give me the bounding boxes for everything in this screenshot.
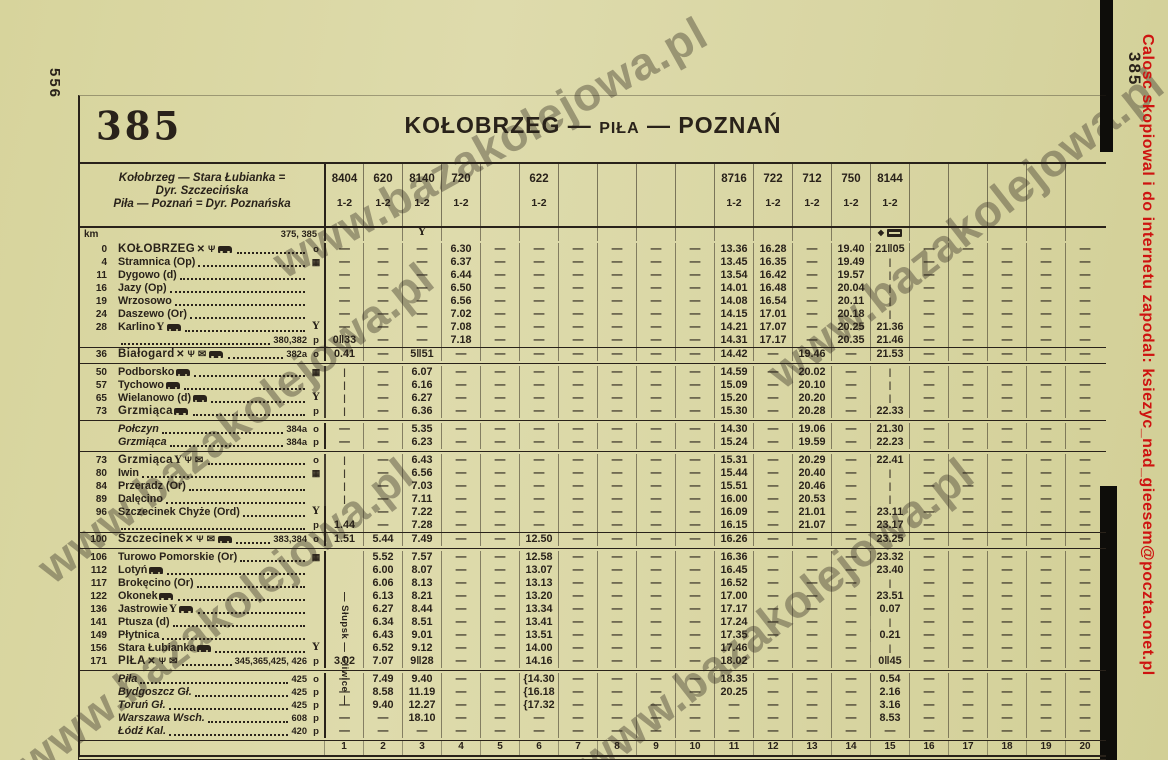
time-cell: — [1065, 379, 1104, 392]
time-cell: — [948, 436, 987, 449]
station-name: Przeradz (Or) [118, 480, 186, 493]
bus-icon [197, 645, 211, 652]
train-number: 720 [442, 173, 480, 197]
time-cell: — [441, 725, 480, 738]
km-value: 36 [80, 348, 110, 361]
time-cell: — [363, 282, 402, 295]
time-cell: — [480, 269, 519, 282]
train-class: 1-2 [832, 197, 870, 209]
time-cell: — [987, 348, 1026, 361]
time-cell: 13.36 [714, 243, 753, 256]
time-cell: — [558, 256, 597, 269]
time-cell: — [987, 590, 1026, 603]
time-cell: — [363, 423, 402, 436]
time-cell: — [675, 454, 714, 467]
train-class: 1-2 [520, 197, 558, 209]
time-cell: — [1065, 533, 1104, 546]
icon-cell [714, 228, 753, 241]
time-cell: — [948, 712, 987, 725]
time-cells: 0‖33——7.18——————14.3117.17—20.3521.46———… [324, 334, 1104, 347]
time-cell: 7.11 [402, 493, 441, 506]
time-cell: — [831, 551, 870, 564]
train-number: 620 [364, 173, 402, 197]
time-cell: — [753, 467, 792, 480]
bar-icon [174, 456, 181, 466]
time-cell: — [597, 436, 636, 449]
station-name: Połczyn [118, 423, 159, 436]
time-cell: — [792, 243, 831, 256]
time-cell: — [1026, 334, 1065, 347]
time-cell: — [948, 243, 987, 256]
time-cell: — [1065, 436, 1104, 449]
time-cell: — [909, 308, 948, 321]
time-cell: — [948, 686, 987, 699]
stop-marker: o [308, 533, 324, 546]
time-cell [324, 506, 363, 519]
time-cell: — [1026, 725, 1065, 738]
dotted-leader [194, 369, 305, 377]
dotted-leader [198, 606, 305, 614]
time-cell: 21.01 [792, 506, 831, 519]
time-cell: 7.49 [363, 673, 402, 686]
station-label: Połczyn384a [110, 423, 308, 436]
time-cell: — [675, 308, 714, 321]
time-cell: — [792, 295, 831, 308]
station-row: Grzmiąca384ap——6.23———————15.24—19.59—22… [80, 436, 1106, 449]
station-name: Piła [118, 673, 137, 686]
time-cell: {14.30 [519, 673, 558, 686]
time-cell: — [987, 673, 1026, 686]
icon-cell [519, 228, 558, 241]
time-cell: — [1026, 506, 1065, 519]
time-cell: — [480, 467, 519, 480]
time-cell: — [480, 603, 519, 616]
time-cell: 0‖33 [324, 334, 363, 347]
time-cell: | [324, 392, 363, 405]
time-cell: — [792, 321, 831, 334]
icon-cell [870, 228, 909, 241]
dotted-leader [195, 689, 289, 697]
train-column-header: 7221-2 [753, 164, 792, 226]
flag-icon [312, 367, 321, 378]
time-cell: 17.24 [714, 616, 753, 629]
dotted-leader [162, 632, 305, 640]
time-cell: 13.13 [519, 577, 558, 590]
station-name: Szczecinek [118, 533, 183, 546]
train-column-header [675, 164, 714, 226]
time-cell: — [636, 533, 675, 546]
route-ref: 420 [291, 725, 307, 738]
buffet-icon [196, 534, 203, 545]
km-value: 80 [80, 467, 110, 480]
station-row: 36Białogard382ao0.41—5‖51———————14.42—19… [80, 347, 1106, 361]
route-title: KOŁOBRZEG — PIŁA — POZNAŃ [80, 112, 1106, 139]
train-column-header [480, 164, 519, 226]
time-cell: 21.07 [792, 519, 831, 532]
time-cell: — [558, 506, 597, 519]
station-name: Łódź Kal. [118, 725, 166, 738]
time-cell: — [987, 506, 1026, 519]
bus-icon [209, 351, 223, 358]
time-cell: — [402, 269, 441, 282]
time-cell: — [987, 642, 1026, 655]
station-label: Stara Łubianka [110, 642, 308, 655]
flag-icon [312, 257, 321, 268]
time-cell: | [870, 295, 909, 308]
time-cell: — [1065, 577, 1104, 590]
train-number: 712 [793, 173, 831, 197]
time-cells: 6.008.07——13.07————16.45———23.40————— [324, 564, 1104, 577]
column-number: 8 [597, 741, 636, 755]
time-cell: — [1065, 642, 1104, 655]
time-cell: — [519, 423, 558, 436]
time-cell: 14.00 [519, 642, 558, 655]
train-column-header: 6201-2 [363, 164, 402, 226]
time-cells: |—6.56———————15.44—20.40—|————— [324, 467, 1104, 480]
couchette-icon [887, 229, 902, 237]
station-row: Łódź Kal.420p———————————————————— [80, 725, 1106, 738]
time-cell: — [558, 467, 597, 480]
time-cell: — [636, 686, 675, 699]
time-cell: — [402, 243, 441, 256]
time-cell [324, 551, 363, 564]
time-cell: — [714, 699, 753, 712]
post-icon [195, 456, 203, 466]
time-cell: — [831, 454, 870, 467]
time-cell: — [753, 699, 792, 712]
time-cell: — [519, 348, 558, 361]
time-cell: 9‖28 [402, 655, 441, 668]
dotted-leader [237, 246, 305, 254]
station-label: Iwin [110, 467, 308, 480]
time-cell: — [675, 506, 714, 519]
time-cell: — [909, 686, 948, 699]
time-cell: — [987, 712, 1026, 725]
diamond-icon [878, 228, 884, 238]
timetable-section: 0KOŁOBRZEGo———6.30——————13.3616.28—19.40… [80, 241, 1106, 363]
time-cell: — [753, 712, 792, 725]
time-cell: — [558, 533, 597, 546]
time-cell: — [1065, 256, 1104, 269]
time-cell: — [1065, 334, 1104, 347]
station-row: 89Dalęcino|—7.11———————16.00—20.53—|————… [80, 493, 1106, 506]
time-cell: — [909, 436, 948, 449]
time-cell: — [831, 366, 870, 379]
time-cell: — [987, 436, 1026, 449]
time-cell: 15.30 [714, 405, 753, 418]
timetable-section: Połczyn384ao——5.35———————14.30—19.06—21.… [80, 420, 1106, 451]
time-cell: — [558, 551, 597, 564]
time-cell: — [675, 243, 714, 256]
time-cell: — [909, 243, 948, 256]
station-label: Wielanowo (d) [110, 392, 308, 405]
column-number: 2 [363, 741, 402, 755]
time-cell: — [441, 480, 480, 493]
route-ref: 608 [291, 712, 307, 725]
time-cell: 9.40 [363, 699, 402, 712]
station-row: 4Stramnica (Op)———6.37——————13.4516.35—1… [80, 256, 1106, 269]
time-cell: — [909, 366, 948, 379]
time-cell: — [987, 655, 1026, 668]
time-cell: — [324, 321, 363, 334]
time-cell: — [948, 629, 987, 642]
time-cell: — [675, 493, 714, 506]
restaurant-icon [185, 535, 193, 545]
time-cell: 20.46 [792, 480, 831, 493]
train-column-header: 7501-2 [831, 164, 870, 226]
time-cell: — [363, 480, 402, 493]
time-cell: 20.04 [831, 282, 870, 295]
time-cell: — [831, 436, 870, 449]
time-cell: 6.56 [402, 467, 441, 480]
time-cell: — [675, 686, 714, 699]
time-cell: — [363, 256, 402, 269]
time-cell: — [636, 725, 675, 738]
time-cell: 16.15 [714, 519, 753, 532]
time-cell: 16.54 [753, 295, 792, 308]
station-label: 380,382 [110, 334, 308, 347]
time-cell: — [480, 379, 519, 392]
time-cell: — [558, 686, 597, 699]
time-cell: 18.35 [714, 673, 753, 686]
column-number: 17 [948, 741, 987, 755]
km-value: 4 [80, 256, 110, 269]
time-cell: 16.28 [753, 243, 792, 256]
time-cell: — [480, 493, 519, 506]
km-value: 106 [80, 551, 110, 564]
time-cell: — [441, 454, 480, 467]
time-cell: — [402, 282, 441, 295]
time-cell: — [753, 655, 792, 668]
time-cell: 6.13 [363, 590, 402, 603]
time-cell: — [636, 366, 675, 379]
station-row: 149Płytnica6.439.01——13.51————17.35———0.… [80, 629, 1106, 642]
time-cell: — [1026, 551, 1065, 564]
time-cell: — [1026, 616, 1065, 629]
dotted-leader [121, 522, 305, 530]
time-cell: — [1065, 655, 1104, 668]
time-cell: 6.27 [363, 603, 402, 616]
time-cell: — [480, 725, 519, 738]
time-cell: — [441, 379, 480, 392]
station-label: Turowo Pomorskie (Or) [110, 551, 308, 564]
time-cell: — [597, 725, 636, 738]
time-cell: — [1026, 493, 1065, 506]
stop-marker [308, 321, 324, 334]
time-cell: — [519, 295, 558, 308]
time-cell: — [558, 673, 597, 686]
km-value: 100 [80, 533, 110, 546]
time-cell: — [558, 348, 597, 361]
dotted-leader [173, 619, 305, 627]
time-cell: — [363, 308, 402, 321]
time-cell: 13.07 [519, 564, 558, 577]
time-cell: — [519, 392, 558, 405]
table-header: Kołobrzeg — Stara Łubianka = Dyr. Szczec… [80, 164, 1106, 228]
time-cell: — [792, 256, 831, 269]
time-cell: — [675, 629, 714, 642]
time-cell: — [909, 616, 948, 629]
train-column-header [1026, 164, 1065, 226]
icon-cell [753, 228, 792, 241]
train-column-header: 81441-2 [870, 164, 909, 226]
flag-icon [312, 468, 321, 479]
train-column-header: 87161-2 [714, 164, 753, 226]
time-cell: — [831, 616, 870, 629]
time-cell: 3.16 [870, 699, 909, 712]
time-cell: — [753, 436, 792, 449]
dotted-leader [169, 728, 288, 736]
train-number: 722 [754, 173, 792, 197]
station-row: 171PIŁA345,365,425, 426p3.027.079‖28——14… [80, 655, 1106, 668]
time-cell: — [480, 423, 519, 436]
time-cell: — [714, 712, 753, 725]
time-cell: — [675, 295, 714, 308]
time-cell: — [909, 603, 948, 616]
time-cell: 6.06 [363, 577, 402, 590]
time-cell: 23.17 [870, 519, 909, 532]
time-cell: — [948, 616, 987, 629]
station-row: 80Iwin|—6.56———————15.44—20.40—|————— [80, 467, 1106, 480]
time-cell: — [597, 686, 636, 699]
route-ref: 380,382 [273, 334, 307, 347]
station-label: Wrzosowo [110, 295, 308, 308]
time-cell: — [480, 564, 519, 577]
stop-marker: o [308, 673, 324, 686]
time-cell: — [909, 519, 948, 532]
dotted-leader [190, 311, 305, 319]
time-cells: —8.5811.19——{16.18————20.25———2.16————— [324, 686, 1104, 699]
time-cell: — [831, 564, 870, 577]
time-cells: 6.439.01——13.51————17.35———0.21————— [324, 629, 1104, 642]
time-cell: — [792, 590, 831, 603]
time-cell: — [480, 256, 519, 269]
time-cells: ———6.30——————13.3616.28—19.4021‖05————— [324, 243, 1104, 256]
time-cell: — [948, 321, 987, 334]
time-cell: — [792, 564, 831, 577]
time-cell: — [1026, 282, 1065, 295]
time-cell: — [519, 269, 558, 282]
bar-icon [169, 605, 176, 615]
time-cell: {16.18 [519, 686, 558, 699]
time-cell: 23.25 [870, 533, 909, 546]
station-label: Dalęcino [110, 493, 308, 506]
time-cell: — [909, 423, 948, 436]
stop-marker [308, 256, 324, 269]
time-cell: — [948, 506, 987, 519]
time-cells: 6.348.51——13.41————17.24———|————— [324, 616, 1104, 629]
time-cell: — [831, 655, 870, 668]
time-cell: — [831, 379, 870, 392]
time-cell: — [636, 423, 675, 436]
time-cell: — [558, 699, 597, 712]
route-title-dash: — [640, 112, 679, 138]
time-cell: — [987, 533, 1026, 546]
time-cells: |—6.36———————15.30—20.28—22.33————— [324, 405, 1104, 418]
km-value: 0 [80, 243, 110, 256]
time-cell: — [831, 642, 870, 655]
station-name: Toruń Gł. [118, 699, 166, 712]
time-cell: — [597, 243, 636, 256]
time-cell: — [1026, 655, 1065, 668]
time-cell: — [636, 712, 675, 725]
time-cell: — [402, 334, 441, 347]
train-class: 1-2 [793, 197, 831, 209]
time-cells: —9.4012.27——{17.32————————3.16————— [324, 699, 1104, 712]
time-cell: — [675, 366, 714, 379]
time-cell: — [831, 577, 870, 590]
time-cell: 12.50 [519, 533, 558, 546]
time-cell: | [870, 577, 909, 590]
km-value: 136 [80, 603, 110, 616]
time-cell: — [831, 590, 870, 603]
dotted-leader [121, 337, 270, 345]
time-cell: — [753, 686, 792, 699]
time-cell: — [558, 243, 597, 256]
time-cell: — [1026, 295, 1065, 308]
train-column-header [909, 164, 948, 226]
time-cell: — [675, 564, 714, 577]
time-cell: — [675, 392, 714, 405]
time-cell: — [558, 392, 597, 405]
route-title-left: KOŁOBRZEG [404, 112, 560, 138]
station-name: Ptusza (d) [118, 616, 170, 629]
time-cell: — [1065, 392, 1104, 405]
direction-info: Kołobrzeg — Stara Łubianka = Dyr. Szczec… [80, 164, 324, 226]
time-cell: — [675, 379, 714, 392]
time-cell: — [792, 686, 831, 699]
credit-line: Calosc skopiowal i do internetu zapodal:… [1138, 34, 1156, 676]
station-name: Dalęcino [118, 493, 163, 506]
dotted-leader [180, 272, 305, 280]
time-cell: — [987, 334, 1026, 347]
time-cell: — [558, 423, 597, 436]
time-cell: — [948, 348, 987, 361]
time-cell: 19.06 [792, 423, 831, 436]
bus-icon [218, 246, 232, 253]
bar-icon [312, 507, 319, 517]
time-cell: — [480, 405, 519, 418]
column-number: 15 [870, 741, 909, 755]
time-cells: ———6.44——————13.5416.42—19.57|————— [324, 269, 1104, 282]
station-label: Brokęcino (Or) [110, 577, 308, 590]
time-cell: — [1065, 295, 1104, 308]
time-cells: ———7.02——————14.1517.01—20.18|————— [324, 308, 1104, 321]
time-cell: 15.24 [714, 436, 753, 449]
train-column-header [1065, 164, 1104, 226]
station-row: Bydgoszcz Gł.425p—8.5811.19——{16.18————2… [80, 686, 1106, 699]
time-cell: — [597, 467, 636, 480]
dotted-leader [170, 439, 284, 447]
icon-cell [909, 228, 948, 241]
time-cell: — [441, 551, 480, 564]
time-cell: — [675, 423, 714, 436]
station-label: Szczecinek383,384 [110, 533, 308, 546]
train-number-row: 84041-26201-281401-27201-26221-287161-27… [324, 164, 1104, 226]
time-cell: — [519, 366, 558, 379]
footer-numbers: 1234567891011121314151617181920 [324, 741, 1104, 755]
bus-icon [167, 324, 181, 331]
time-cell: 15.44 [714, 467, 753, 480]
time-cell: — [324, 243, 363, 256]
time-cell: 13.41 [519, 616, 558, 629]
time-cell: 6.52 [363, 642, 402, 655]
time-cell: — [948, 256, 987, 269]
dotted-leader [193, 408, 305, 416]
time-cell: 6.56 [441, 295, 480, 308]
station-label: Warszawa Wsch.608 [110, 712, 308, 725]
time-cell: — [324, 436, 363, 449]
